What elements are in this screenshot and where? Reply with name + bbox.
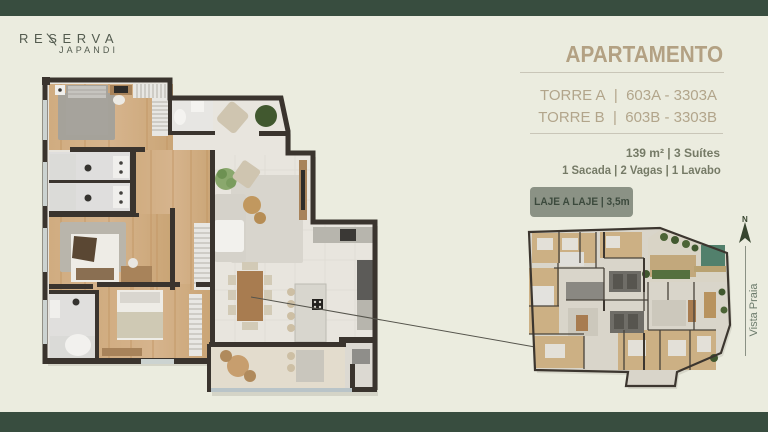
svg-text:Vista Praia: Vista Praia <box>748 283 760 337</box>
